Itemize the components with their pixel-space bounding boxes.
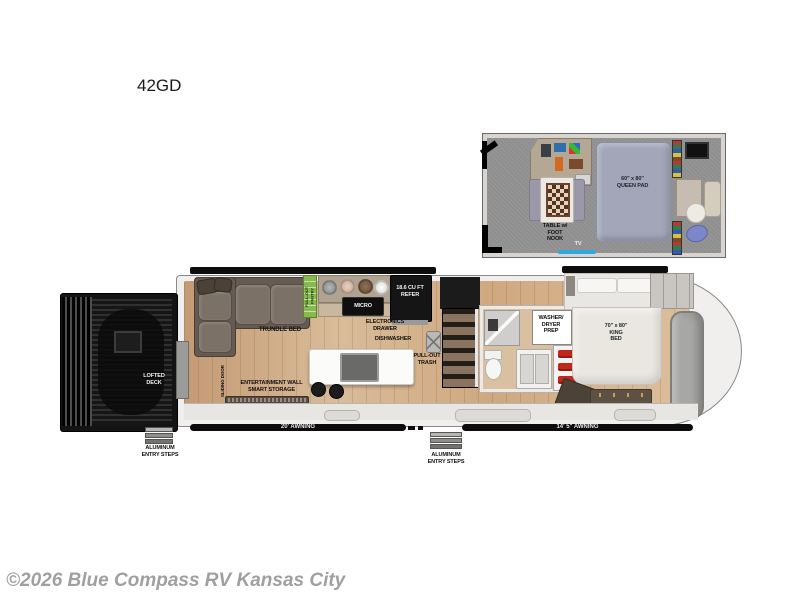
loft-floorplan: TABLE w/ FOOT NOOK 60" x 80" QUEEN PAD T…	[482, 133, 726, 258]
shower-fixture	[488, 319, 498, 331]
loft-tv-mount	[558, 250, 596, 254]
island-sink	[340, 353, 379, 382]
sliding-door-label: SLIDING DOOR	[220, 361, 228, 401]
micro-label: MICRO	[354, 303, 372, 310]
pull-out-trash-bin	[426, 331, 441, 353]
queen-pad-bed	[596, 142, 671, 242]
bathroom-vanity	[516, 349, 552, 389]
smart-storage-studs	[228, 398, 306, 402]
bowl	[322, 280, 337, 295]
center-entry-steps-label: ALUMINUM ENTRY STEPS	[402, 452, 490, 465]
storage-hatch	[324, 410, 360, 421]
king-bed	[572, 307, 662, 385]
throw-pillow	[213, 277, 233, 293]
plate	[374, 280, 389, 295]
storage-item	[555, 157, 563, 171]
king-bed-label: 70" x 80" KING BED	[572, 323, 660, 343]
sofa-cushion	[198, 291, 232, 321]
storage-hatch	[455, 409, 531, 422]
storage-item	[569, 143, 580, 154]
stairs-to-loft	[442, 308, 478, 388]
awning-14ft-label: 14' 5" AWNING	[462, 424, 693, 431]
floorplan-page: 42GD TABLE w/ FOOT NOOK 60" x 80" QUEEN …	[0, 0, 800, 600]
storage-item	[569, 159, 583, 169]
loft-stair-wall	[482, 247, 502, 253]
checkerboard-tabletop	[546, 183, 570, 217]
vanity-door	[535, 354, 549, 384]
ottoman	[686, 203, 706, 223]
floorplan-model-title: 42GD	[137, 76, 181, 96]
sofa-cushion	[198, 321, 232, 353]
dealer-watermark: ©2026 Blue Compass RV Kansas City	[6, 570, 345, 592]
loft-chair	[704, 181, 721, 217]
awning-14ft: 14' 5" AWNING	[462, 424, 693, 431]
living-slide-topper	[190, 267, 436, 274]
bowl	[358, 279, 373, 294]
toilet	[485, 358, 502, 380]
awning-joint	[408, 426, 415, 430]
stairwell-wall	[440, 277, 480, 309]
left-entry-steps-label: ALUMINUM ENTRY STEPS	[116, 445, 204, 458]
refrigerator	[390, 275, 432, 322]
left-entry-steps	[145, 427, 173, 444]
bookshelf-top	[672, 140, 682, 178]
pantry-label: PULL-OUT PANTRY	[304, 276, 316, 317]
sofa-cushion	[270, 284, 307, 325]
loft-tv-label: TV	[558, 241, 598, 248]
stair-railing	[475, 309, 478, 387]
queen-pad-label: 60" x 80" QUEEN PAD	[596, 176, 669, 189]
awning-20ft: 20' AWNING	[190, 424, 406, 431]
bookshelf-bottom	[672, 221, 682, 255]
bedroom-slide-topper	[562, 266, 668, 273]
microwave: MICRO	[342, 297, 384, 316]
main-floorplan: LOFTED DECK ALUMINUM ENTRY STEPS TRUNDLE…	[58, 263, 748, 473]
deck-railing	[62, 297, 92, 426]
sliding-glass-door	[176, 341, 189, 399]
pull-out-pantry: PULL-OUT PANTRY	[303, 275, 317, 318]
nightstand	[566, 276, 575, 296]
center-entry-steps	[430, 432, 462, 449]
entertainment-wall-label: ENTERTAINMENT WALL SMART STORAGE	[230, 380, 313, 393]
storage-hatch	[614, 409, 656, 421]
washer-dryer-label: WASHER/ DRYER PREP	[532, 315, 570, 335]
bed-pillow	[577, 278, 617, 293]
electronics-drawer-label: ELECTRONICS DRAWER	[355, 319, 415, 332]
trundle-bed-label: TRUNDLE BED	[245, 327, 315, 334]
storage-item	[541, 144, 551, 157]
exterior-lower-wall	[184, 403, 698, 420]
bar-stool	[311, 382, 326, 397]
sofa-cushion	[235, 284, 271, 325]
plate	[340, 279, 355, 294]
dishwasher-label: DISHWASHER	[362, 336, 424, 343]
loft-tv-screen	[685, 142, 709, 159]
awning-joint	[418, 426, 423, 430]
deck-table	[114, 331, 142, 353]
refer-label: 18.6 CU FT REFER	[390, 285, 430, 298]
front-closet	[650, 273, 694, 309]
deck-rug	[98, 309, 164, 415]
awning-20ft-label: 20' AWNING	[190, 424, 406, 431]
bar-stool	[329, 384, 344, 399]
lofted-deck-label: LOFTED DECK	[128, 373, 180, 386]
vanity-door	[520, 354, 534, 384]
table-foot-nook-label: TABLE w/ FOOT NOOK	[522, 223, 588, 243]
storage-item	[554, 143, 566, 152]
